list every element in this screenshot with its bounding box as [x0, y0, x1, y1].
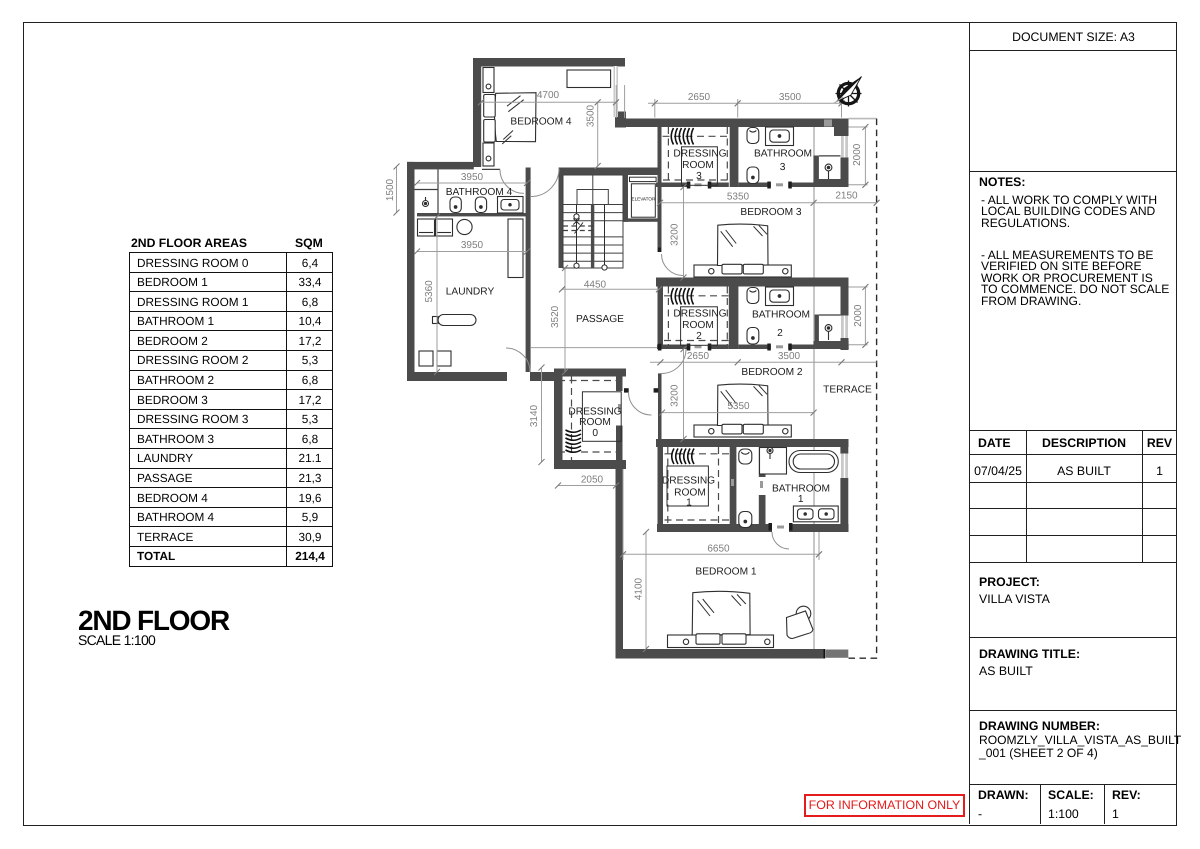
- svg-text:1500: 1500: [385, 178, 396, 201]
- svg-text:6650: 6650: [707, 544, 730, 555]
- svg-text:BATHROOM 4: BATHROOM 4: [446, 187, 513, 198]
- svg-text:DRESSING: DRESSING: [568, 407, 621, 418]
- svg-text:2000: 2000: [852, 143, 863, 166]
- svg-text:2: 2: [696, 331, 702, 342]
- svg-text:2650: 2650: [687, 351, 710, 362]
- svg-text:5360: 5360: [424, 280, 435, 303]
- svg-text:BEDROOM 4: BEDROOM 4: [510, 117, 571, 128]
- svg-text:0: 0: [592, 428, 598, 439]
- svg-text:3500: 3500: [586, 104, 597, 127]
- svg-text:1: 1: [798, 494, 804, 505]
- svg-text:DRESSING: DRESSING: [662, 475, 715, 486]
- svg-text:TERRACE: TERRACE: [823, 385, 872, 396]
- svg-text:4100: 4100: [634, 577, 645, 600]
- svg-text:LAUNDRY: LAUNDRY: [446, 287, 495, 298]
- svg-text:ROOM: ROOM: [579, 417, 611, 428]
- svg-text:DRESSING: DRESSING: [673, 149, 726, 160]
- svg-text:4450: 4450: [584, 280, 607, 291]
- svg-text:BEDROOM 3: BEDROOM 3: [740, 207, 801, 218]
- svg-text:3200: 3200: [670, 223, 681, 246]
- svg-text:BATHROOM: BATHROOM: [754, 149, 812, 160]
- svg-text:3: 3: [780, 162, 786, 173]
- svg-text:1: 1: [686, 497, 692, 508]
- svg-text:3520: 3520: [550, 305, 561, 328]
- svg-text:4700: 4700: [537, 90, 560, 101]
- svg-text:3500: 3500: [779, 92, 802, 103]
- svg-text:3: 3: [696, 171, 702, 182]
- svg-text:ELEVATOR: ELEVATOR: [632, 197, 656, 202]
- svg-text:2150: 2150: [835, 191, 858, 202]
- svg-text:2000: 2000: [853, 304, 864, 327]
- svg-text:2650: 2650: [688, 92, 711, 103]
- svg-text:BATHROOM: BATHROOM: [752, 310, 810, 321]
- svg-text:2: 2: [777, 328, 783, 339]
- svg-text:5350: 5350: [727, 191, 750, 202]
- svg-text:3950: 3950: [461, 172, 484, 183]
- svg-text:2050: 2050: [581, 474, 604, 485]
- svg-text:5350: 5350: [727, 401, 750, 412]
- svg-text:BEDROOM 2: BEDROOM 2: [741, 367, 802, 378]
- svg-text:PASSAGE: PASSAGE: [576, 314, 624, 325]
- svg-text:3500: 3500: [778, 351, 801, 362]
- svg-text:ROOM: ROOM: [682, 160, 714, 171]
- svg-text:BEDROOM 1: BEDROOM 1: [695, 567, 756, 578]
- svg-text:3200: 3200: [670, 384, 681, 407]
- svg-text:3950: 3950: [461, 240, 484, 251]
- svg-text:3140: 3140: [529, 404, 540, 427]
- svg-text:ROOM: ROOM: [682, 320, 714, 331]
- svg-text:BATHROOM: BATHROOM: [772, 483, 830, 494]
- svg-text:DRESSING: DRESSING: [673, 309, 726, 320]
